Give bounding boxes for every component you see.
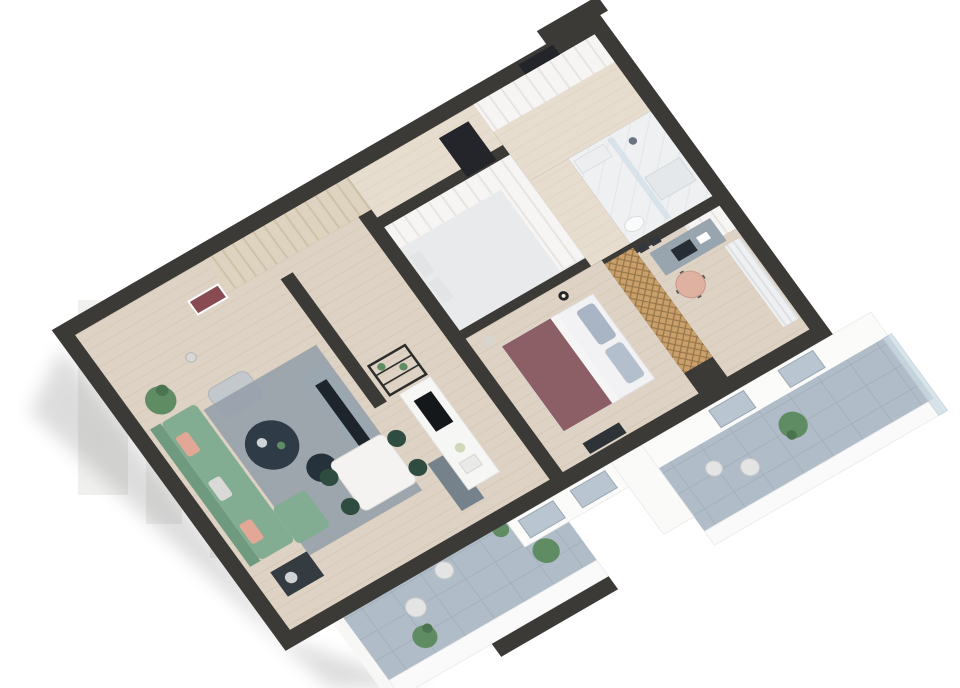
floorplan-svg: [0, 0, 960, 688]
floorplan-render: [0, 0, 960, 688]
